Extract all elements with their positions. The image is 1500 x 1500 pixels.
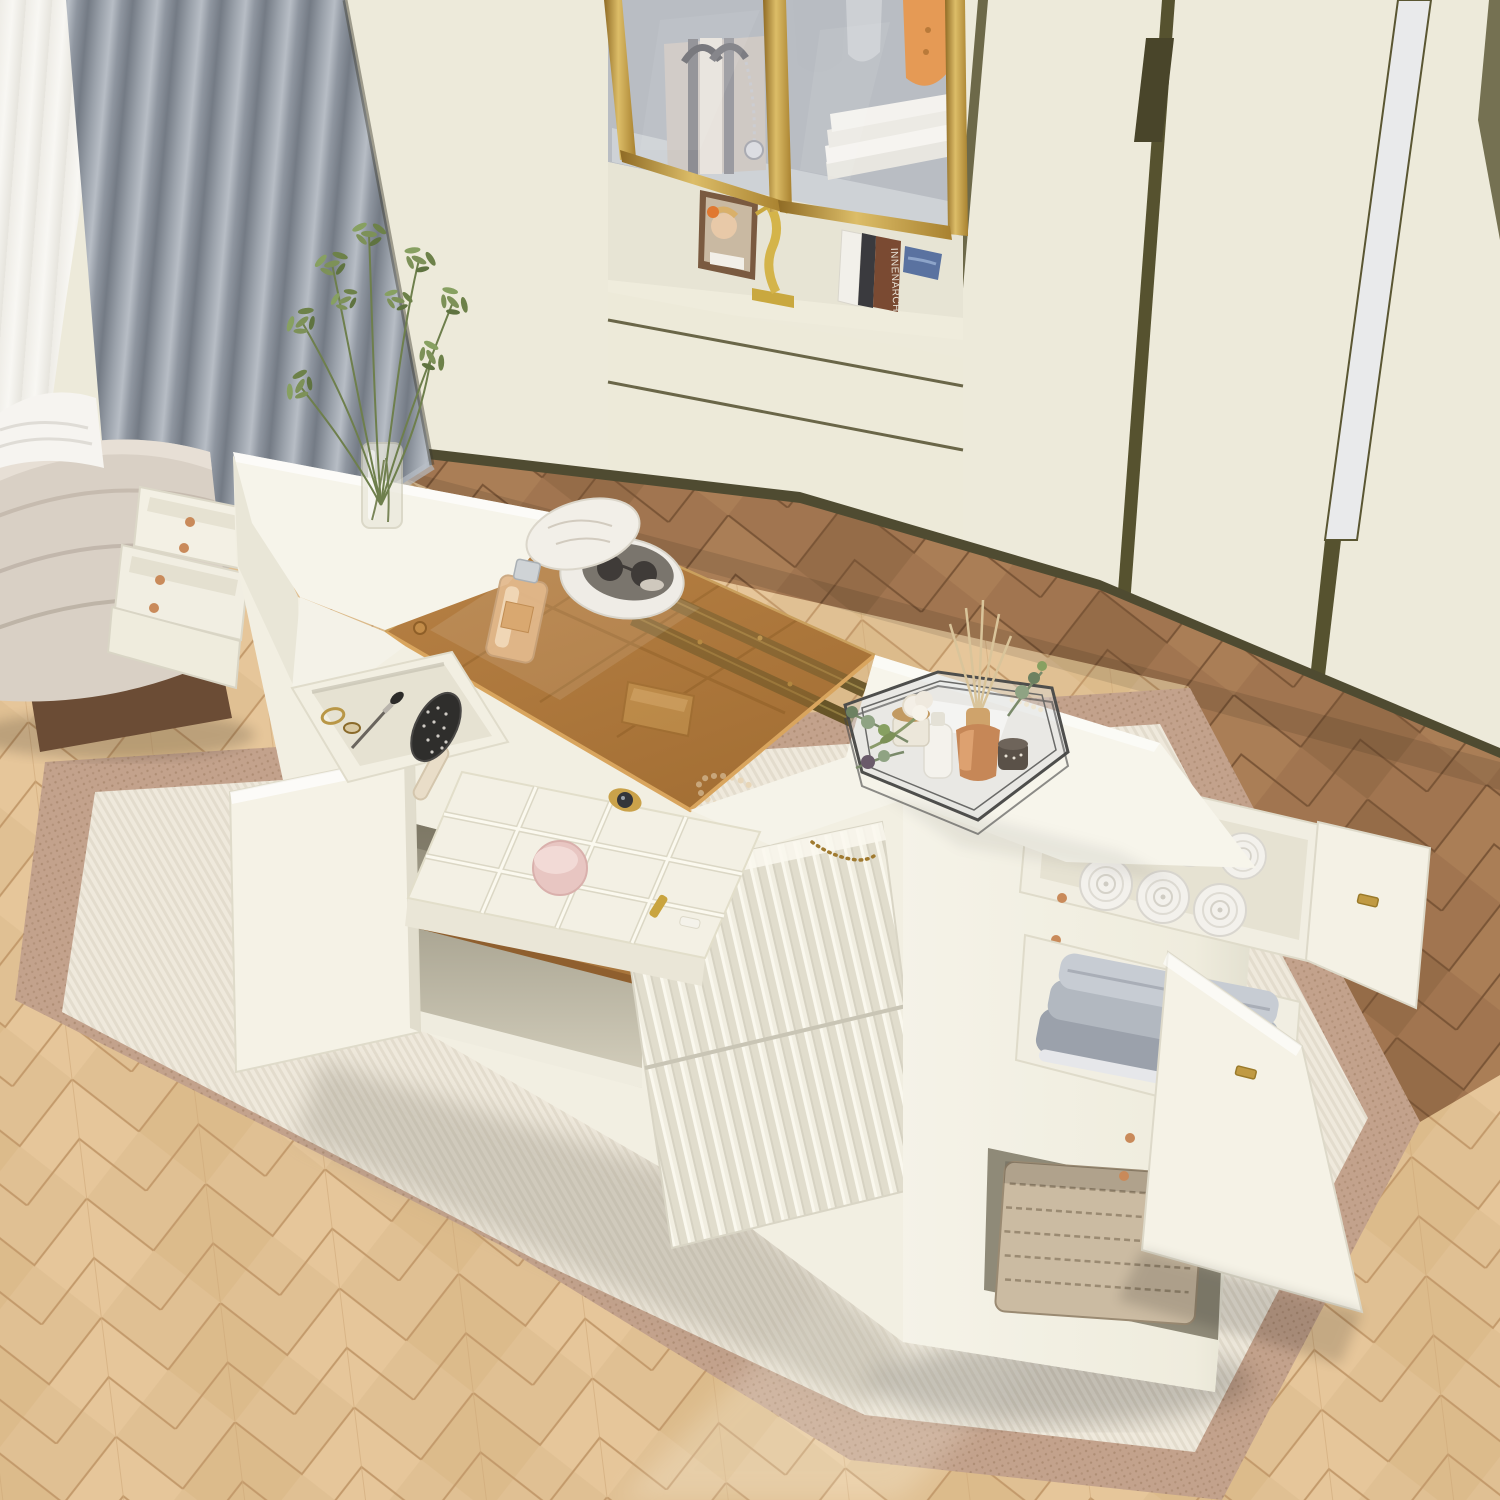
powder-compact xyxy=(533,841,587,895)
open-cabinet-door xyxy=(230,754,420,1072)
gold-trinket xyxy=(344,723,360,733)
candle-jar xyxy=(998,738,1028,770)
product-photo: INNENARCH xyxy=(0,0,1500,1500)
glass-hinge xyxy=(414,622,426,634)
gold-glass-display-cabinet: INNENARCH xyxy=(604,0,968,545)
white-throw xyxy=(0,392,104,472)
books: INNENARCH xyxy=(838,230,901,312)
book-spine-text: INNENARCH xyxy=(888,248,901,312)
pearl-cluster xyxy=(640,579,664,591)
photo-frame xyxy=(698,190,758,280)
